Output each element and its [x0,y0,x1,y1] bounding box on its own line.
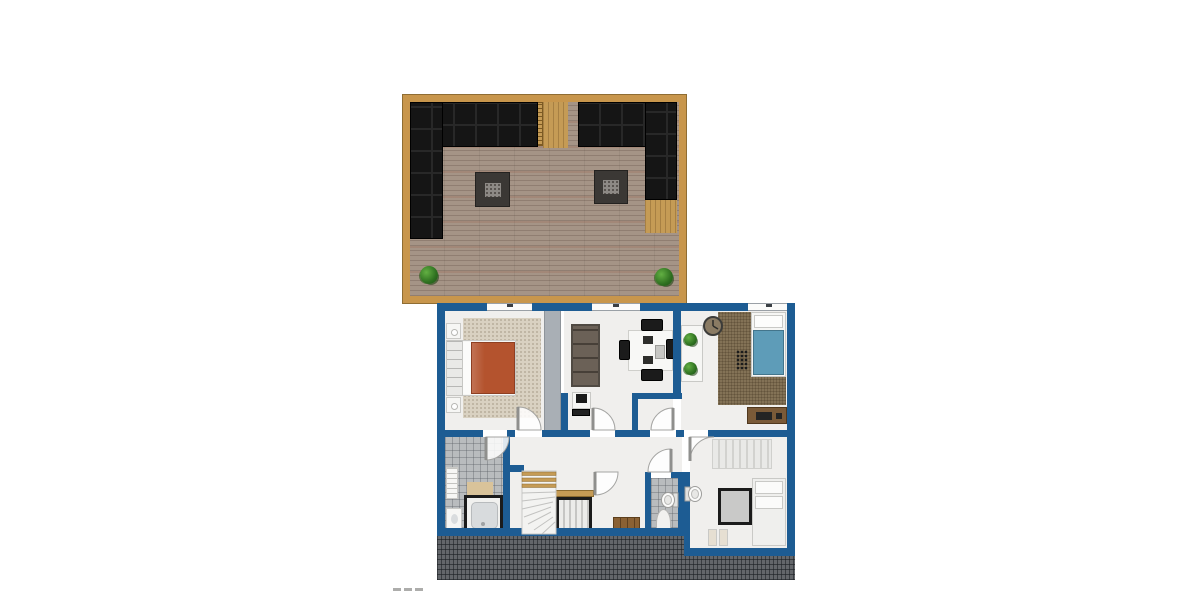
door-wc [648,449,671,472]
wood-corner-patch [645,200,677,233]
corner-sofa-left-side [410,102,443,239]
door-bedroom-right [651,408,673,430]
corner-sofa-right-side [645,102,677,200]
coffee-table-right [594,170,628,204]
door-bedroom-left [518,407,541,430]
roof-terrace [403,95,686,303]
deck-walkway [543,102,568,148]
winder-staircase [522,471,556,534]
door-room-bottom-right [690,437,714,461]
tray-icon [603,180,619,194]
planter-right-icon [655,268,673,286]
wall-sink-icon [685,487,702,502]
plan-linework [437,303,795,580]
clock-hands-icon [713,320,718,329]
watermark [393,588,423,591]
planter-left-icon [420,266,438,284]
tray-icon [485,183,501,197]
attic-floor-plan [437,303,795,580]
floor-plan-image [0,0,1200,600]
door-living [593,408,615,430]
door-bathroom [486,437,509,460]
toilet-icon [662,493,679,508]
door-stair-hall [595,472,618,495]
coffee-table-left [475,172,510,207]
